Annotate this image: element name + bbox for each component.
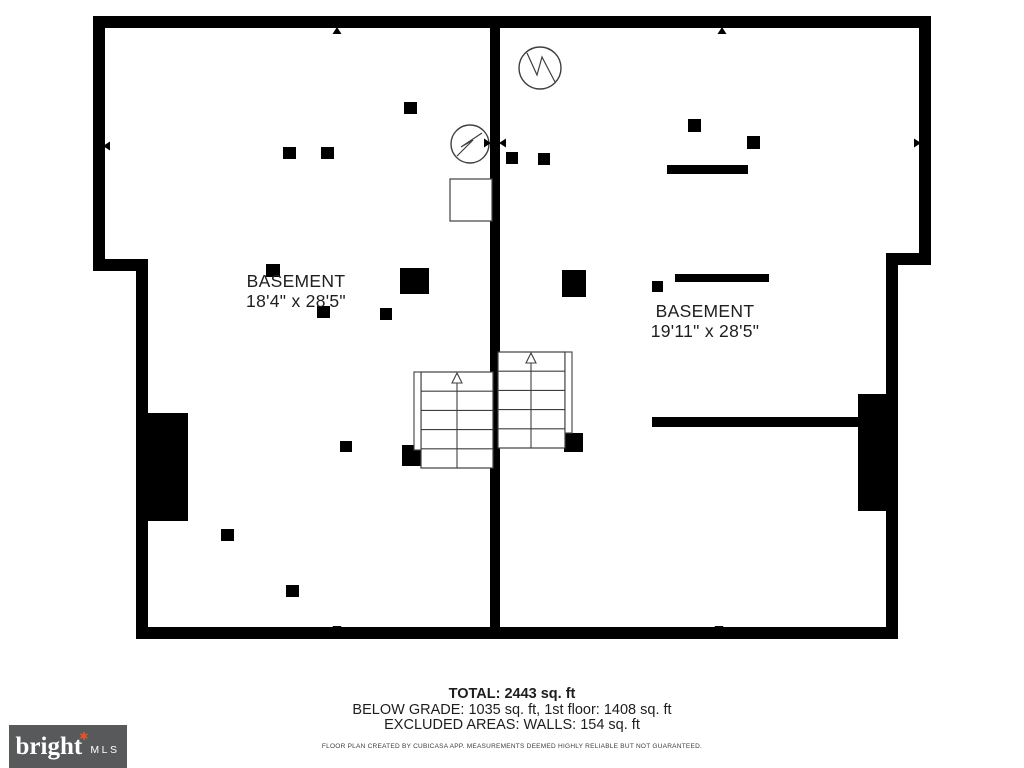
support-post <box>380 308 392 320</box>
support-post <box>747 136 760 149</box>
total-area-text: TOTAL: 2443 sq. ft <box>0 686 1024 702</box>
wall-pier <box>148 413 188 521</box>
logo-spark-icon: ✱ <box>79 732 88 743</box>
support-post <box>286 585 299 597</box>
stair-rail <box>565 352 572 433</box>
partial-wall <box>675 274 769 282</box>
support-post <box>221 529 234 541</box>
stair-rail <box>414 372 421 450</box>
below-grade-area-text: BELOW GRADE: 1035 sq. ft, 1st floor: 140… <box>0 702 1024 718</box>
floor-plan-canvas <box>0 0 1024 768</box>
support-post <box>564 433 583 452</box>
disclaimer-text: FLOOR PLAN CREATED BY CUBICASA APP. MEAS… <box>0 743 1024 750</box>
wall-segment <box>652 417 859 427</box>
wall-segment <box>136 259 148 639</box>
direction-marker-icon <box>718 27 727 34</box>
direction-marker-icon <box>499 139 506 148</box>
utility-appliance-icon <box>451 125 489 163</box>
logo-brand-text: bright <box>16 734 83 759</box>
partial-wall <box>667 165 748 174</box>
excluded-area-text: EXCLUDED AREAS: WALLS: 154 sq. ft <box>0 717 1024 733</box>
wall-segment <box>93 16 931 28</box>
room-label-basement-right: BASEMENT 19'11" x 28'5" <box>651 301 760 341</box>
support-post <box>562 270 586 297</box>
support-post <box>283 147 296 159</box>
bright-mls-logo: bright ✱ MLS <box>9 725 127 768</box>
support-post <box>404 102 417 114</box>
room-name: BASEMENT <box>651 301 760 321</box>
wall-segment <box>490 16 500 627</box>
support-post <box>652 281 663 292</box>
support-post <box>688 119 701 132</box>
support-post <box>340 441 352 452</box>
support-post <box>538 153 550 165</box>
wall-segment <box>136 627 897 639</box>
room-dimensions: 18'4" x 28'5" <box>246 291 346 311</box>
wall-segment <box>93 16 105 271</box>
wall-segment <box>919 16 931 265</box>
support-post <box>506 152 518 164</box>
support-post <box>321 147 334 159</box>
floor-plan-page: BASEMENT 18'4" x 28'5" BASEMENT 19'11" x… <box>0 0 1024 768</box>
fixture-box <box>450 179 492 221</box>
wall-pier <box>858 394 889 511</box>
utility-appliance-icon <box>519 47 561 89</box>
logo-suffix-text: MLS <box>90 744 119 756</box>
support-post <box>400 268 429 294</box>
room-label-basement-left: BASEMENT 18'4" x 28'5" <box>246 271 346 311</box>
room-name: BASEMENT <box>246 271 346 291</box>
room-dimensions: 19'11" x 28'5" <box>651 321 760 341</box>
direction-marker-icon <box>333 27 342 34</box>
